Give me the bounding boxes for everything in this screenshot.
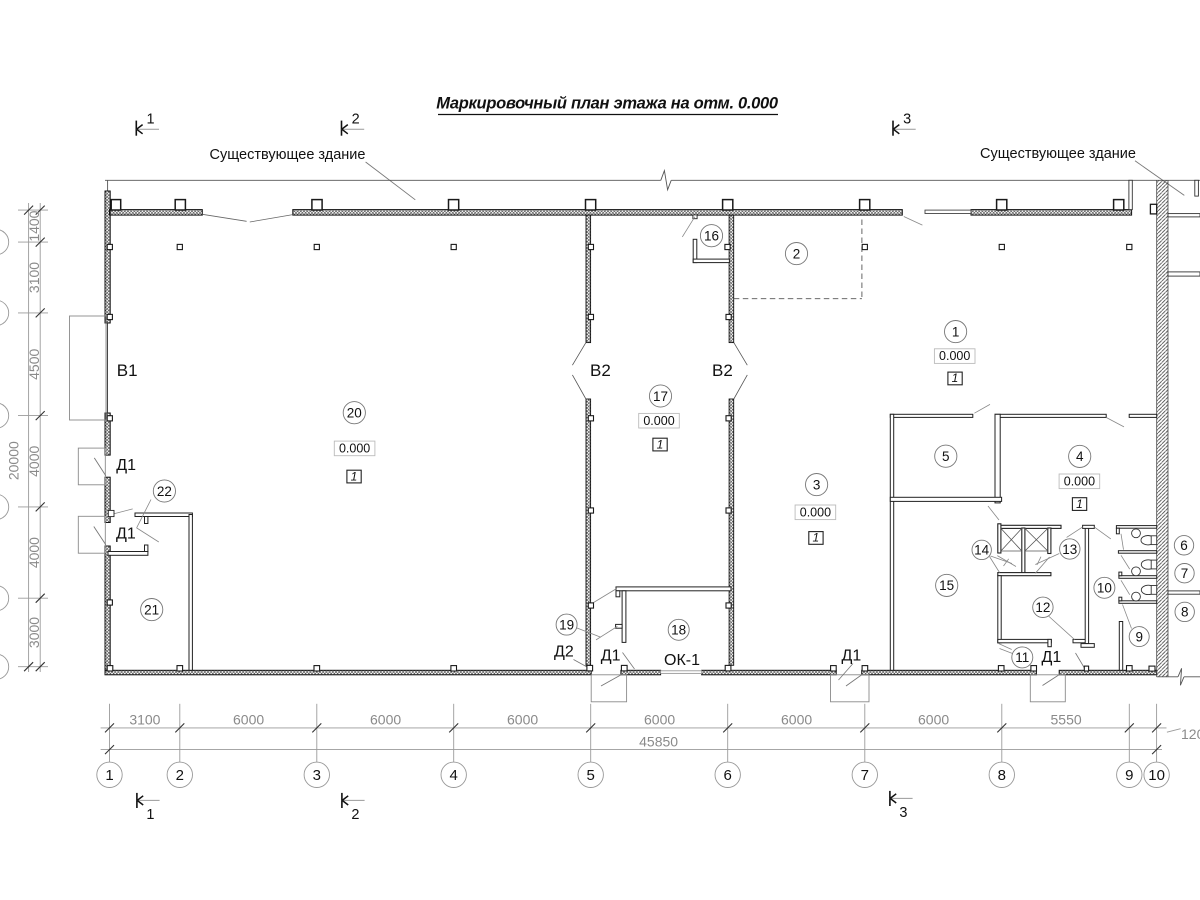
svg-text:6000: 6000 (918, 711, 949, 727)
svg-text:1400: 1400 (26, 210, 42, 241)
svg-text:20000: 20000 (6, 441, 22, 480)
svg-text:0.000: 0.000 (339, 442, 370, 456)
svg-text:3100: 3100 (129, 711, 160, 727)
svg-text:9: 9 (1125, 767, 1133, 784)
svg-text:Д1: Д1 (1042, 649, 1062, 666)
svg-text:3100: 3100 (26, 262, 42, 293)
svg-text:11: 11 (1015, 650, 1029, 665)
svg-text:9: 9 (1135, 629, 1143, 644)
svg-text:6000: 6000 (507, 711, 538, 727)
svg-text:1: 1 (105, 767, 113, 784)
svg-text:4000: 4000 (26, 446, 42, 477)
svg-text:Маркировочный план этажа на от: Маркировочный план этажа на отм. 0.000 (436, 95, 779, 113)
svg-text:3: 3 (903, 112, 911, 128)
svg-text:4500: 4500 (26, 349, 42, 380)
svg-text:21: 21 (144, 602, 159, 617)
svg-text:Д2: Д2 (554, 644, 574, 661)
svg-text:ОК-1: ОК-1 (664, 652, 700, 669)
svg-text:1: 1 (952, 371, 959, 385)
svg-text:3: 3 (899, 805, 907, 821)
svg-text:12: 12 (1035, 600, 1050, 615)
svg-text:7: 7 (861, 767, 869, 784)
svg-text:5550: 5550 (1051, 711, 1082, 727)
svg-text:10: 10 (1148, 767, 1165, 784)
svg-text:20: 20 (347, 406, 362, 421)
svg-text:3: 3 (313, 767, 321, 784)
svg-text:6: 6 (724, 767, 732, 784)
svg-text:3: 3 (813, 477, 821, 492)
svg-text:Существующее здание: Существующее здание (210, 147, 366, 163)
svg-text:45850: 45850 (639, 734, 678, 750)
svg-text:8: 8 (1181, 605, 1189, 620)
svg-text:5: 5 (587, 767, 595, 784)
svg-text:10: 10 (1097, 581, 1112, 596)
svg-text:1: 1 (351, 469, 358, 483)
svg-text:5: 5 (942, 449, 950, 464)
svg-text:1200: 1200 (1181, 726, 1200, 742)
svg-text:2: 2 (352, 112, 360, 128)
svg-text:22: 22 (157, 484, 172, 499)
svg-text:4000: 4000 (26, 537, 42, 568)
svg-text:1: 1 (813, 531, 820, 545)
svg-text:Существующее здание: Существующее здание (980, 146, 1136, 162)
svg-text:1: 1 (146, 112, 154, 128)
svg-text:15: 15 (939, 578, 954, 593)
svg-text:0.000: 0.000 (939, 349, 970, 363)
svg-text:6000: 6000 (370, 711, 401, 727)
svg-text:0.000: 0.000 (1064, 474, 1095, 488)
svg-text:3000: 3000 (26, 617, 42, 648)
svg-text:4: 4 (1076, 449, 1084, 464)
svg-text:2: 2 (176, 767, 184, 784)
svg-text:6000: 6000 (233, 711, 264, 727)
svg-text:В2: В2 (590, 361, 611, 380)
svg-text:Д1: Д1 (116, 525, 136, 542)
svg-text:0.000: 0.000 (643, 414, 674, 428)
svg-text:17: 17 (653, 389, 668, 404)
svg-text:16: 16 (704, 229, 719, 244)
svg-text:7: 7 (1181, 566, 1189, 581)
svg-text:1: 1 (1076, 497, 1083, 511)
svg-text:14: 14 (974, 543, 990, 558)
svg-text:8: 8 (998, 767, 1006, 784)
svg-text:1: 1 (952, 324, 960, 339)
svg-text:2: 2 (351, 807, 359, 823)
svg-text:2: 2 (793, 246, 801, 261)
svg-text:В1: В1 (117, 361, 138, 380)
svg-text:4: 4 (450, 767, 458, 784)
svg-text:1: 1 (657, 437, 664, 451)
svg-text:Д1: Д1 (842, 647, 862, 664)
svg-text:6000: 6000 (781, 711, 812, 727)
svg-text:6: 6 (1180, 538, 1188, 553)
svg-text:18: 18 (671, 623, 686, 638)
svg-text:Д1: Д1 (601, 647, 621, 664)
svg-text:0.000: 0.000 (800, 505, 831, 519)
svg-text:13: 13 (1062, 542, 1077, 557)
svg-text:В2: В2 (712, 361, 733, 380)
svg-text:6000: 6000 (644, 711, 675, 727)
svg-text:19: 19 (559, 617, 574, 632)
svg-text:1: 1 (146, 807, 154, 823)
svg-text:Д1: Д1 (116, 457, 136, 474)
